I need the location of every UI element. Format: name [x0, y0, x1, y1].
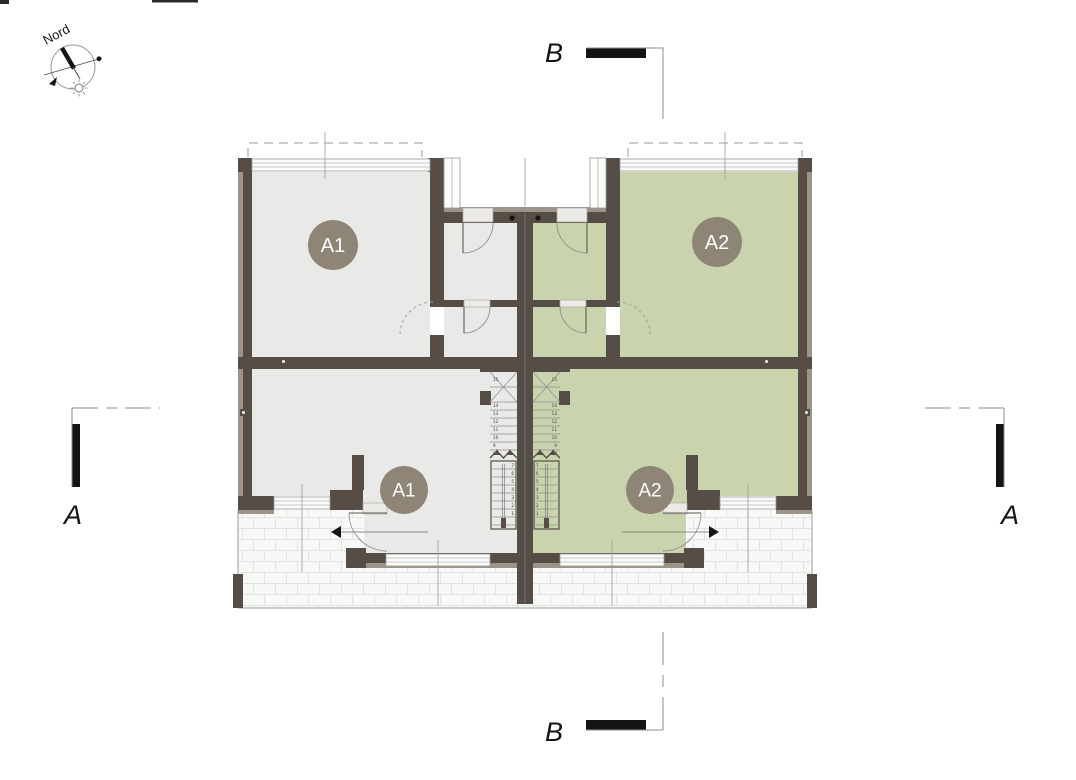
wall-corner — [798, 158, 812, 172]
wall-outer — [238, 172, 243, 510]
stair-tread-number: 10 — [493, 435, 499, 440]
wall-corner — [238, 158, 252, 172]
stair-tread-number: 2 — [511, 503, 514, 508]
wall-hall-a2 — [586, 300, 606, 307]
stair-tread-number: 14 — [552, 403, 558, 408]
wall-outer — [807, 172, 812, 510]
artifact-mark — [0, 0, 9, 4]
threshold-entrance-a2 — [557, 208, 587, 222]
floor-plan-canvas: 151413121110987654321 151413121110987654… — [0, 0, 1076, 780]
stair-tread-number: 11 — [493, 427, 499, 432]
compass-north-label: Nord — [40, 21, 72, 47]
section-marker-a-right: A — [920, 408, 1019, 530]
terrace-wall-stub-east — [807, 574, 817, 608]
stair-tread-number: 15 — [493, 377, 499, 382]
stair-tread-number: 7 — [511, 463, 514, 468]
wall-corner-a1 — [346, 548, 366, 568]
window-north-a1 — [252, 159, 430, 171]
stair-tread-number: 5 — [511, 479, 514, 484]
stair-tread-number: 6 — [511, 471, 514, 476]
wall-west — [243, 158, 252, 510]
stair-tread-number: 7 — [536, 463, 539, 468]
threshold-terrace-a1 — [363, 503, 387, 514]
wall-interior-a2 — [533, 357, 812, 369]
wall-corner-a2 — [684, 548, 704, 568]
threshold-hall-a1 — [464, 300, 490, 307]
stair-tread-number: 1 — [511, 511, 514, 516]
section-letter-b-top: B — [545, 38, 563, 68]
floor-plan-page: 151413121110987654321 151413121110987654… — [0, 0, 1076, 780]
wall-outer — [238, 510, 274, 514]
section-marker-a-left: A — [62, 408, 160, 530]
wall-marker-dot — [282, 360, 285, 363]
stair-handrail-post — [501, 518, 506, 528]
stair-tread-number: 15 — [552, 377, 558, 382]
wall-pier-a1 — [352, 455, 364, 490]
stair-tread-number: 5 — [536, 479, 539, 484]
wall-stub — [430, 335, 444, 357]
wall-stub — [606, 335, 620, 357]
section-letter-b-bottom: B — [545, 717, 563, 747]
north-compass: Nord — [40, 21, 102, 96]
threshold-hall-a2 — [560, 300, 586, 307]
compass-axis-dot — [97, 56, 102, 61]
threshold-entrance-a1 — [463, 208, 493, 222]
stair-tread-number: 13 — [493, 411, 499, 416]
top-edge-artifacts — [0, 0, 198, 4]
window-north-a2 — [620, 159, 798, 171]
terrace-a1-west — [238, 510, 363, 608]
wall-corner-a2 — [687, 490, 720, 510]
badge-label-a2-living: A2 — [638, 481, 661, 502]
section-bar-b-top — [586, 48, 646, 58]
stair-tread-number: 10 — [552, 435, 558, 440]
stair-tread-number: 9 — [493, 443, 496, 448]
unit-a2-hall — [533, 223, 606, 300]
stair-tread-number: 6 — [536, 471, 539, 476]
stair-newel-a1 — [480, 391, 491, 405]
stair-tread-number: 11 — [552, 427, 558, 432]
terrace-a2-south — [524, 568, 704, 608]
wall-marker-dot — [805, 411, 808, 414]
needle-tail — [73, 67, 80, 79]
wall-hall-a1 — [490, 300, 517, 307]
stair-tread-number: 9 — [554, 443, 557, 448]
wall-corner — [604, 158, 620, 172]
wall-marker-dot — [765, 360, 768, 363]
section-letter-a-left: A — [62, 500, 82, 530]
wall-outer — [776, 510, 812, 514]
wall-southeast — [776, 496, 812, 510]
north-needle-icon — [62, 48, 74, 69]
stair-tread-number: 4 — [511, 487, 514, 492]
stair-tread-number: 3 — [536, 495, 539, 500]
wall-interior-a1 — [238, 357, 517, 369]
stair-newel-a2 — [559, 391, 570, 405]
wall-porch-side-a2 — [606, 172, 620, 307]
badge-label-a1-upper: A1 — [321, 235, 345, 257]
section-marker-b-top: B — [545, 38, 663, 119]
wall-pier-a2 — [686, 455, 698, 490]
section-bar-a-left — [72, 424, 80, 487]
roof-overhang-dashed — [248, 143, 802, 157]
canopy-post — [535, 215, 540, 220]
stair-tread-number: 3 — [511, 495, 514, 500]
canopy-post — [509, 215, 514, 220]
badge-label-a1-living: A1 — [392, 481, 415, 502]
compass-arrowhead-icon — [49, 77, 57, 86]
stair-tread-number: 13 — [552, 411, 558, 416]
wall-hall-a1 — [444, 300, 464, 307]
stair-tread-number: 1 — [536, 511, 539, 516]
section-bar-b-bottom — [586, 720, 646, 730]
artifact-mark — [152, 0, 198, 3]
stair-handrail-post — [544, 518, 549, 528]
stair-landing-edge — [480, 368, 517, 372]
wall-hall-a2 — [533, 300, 560, 307]
wall-east — [798, 158, 807, 510]
stair-tread-number: 2 — [536, 503, 539, 508]
terrace-wall-stub-west — [233, 574, 243, 608]
stair-landing-edge — [533, 368, 570, 372]
terrace-a1-south — [346, 568, 526, 608]
wall-southwest — [238, 496, 274, 510]
unit-a1-hall — [444, 223, 517, 300]
section-line-b-top — [586, 48, 663, 119]
terrace-a2-east — [687, 510, 812, 608]
stair-tread-number: 12 — [552, 419, 558, 424]
stair-tread-number: 14 — [493, 403, 499, 408]
sun-icon — [75, 84, 83, 92]
section-marker-b-bottom: B — [545, 632, 663, 747]
wall-marker-dot — [242, 411, 245, 414]
section-letter-a-right: A — [999, 500, 1019, 530]
stair-tread-number: 12 — [493, 419, 499, 424]
stair-tread-number: 4 — [536, 487, 539, 492]
wall-corner-a1 — [330, 490, 363, 510]
wall-porch-side-a1 — [430, 172, 444, 307]
section-bar-a-right — [996, 424, 1004, 487]
badge-label-a2-upper: A2 — [705, 232, 729, 254]
